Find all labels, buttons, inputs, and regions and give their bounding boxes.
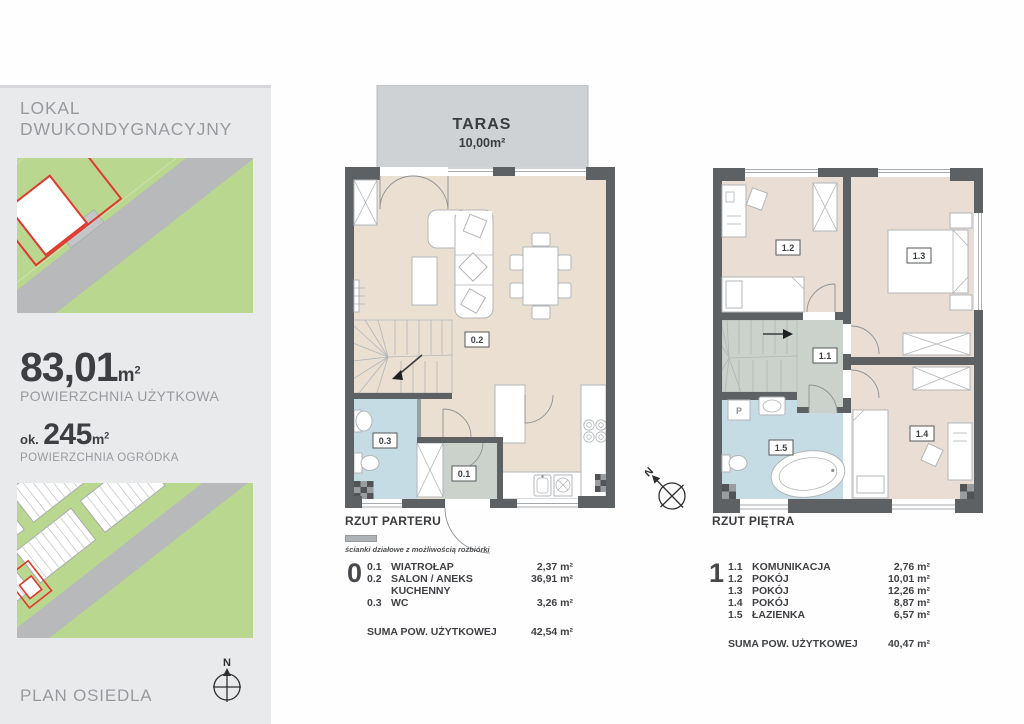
room-label-0-3: 0.3: [373, 433, 397, 448]
duct-checker: [595, 474, 606, 492]
terrace-area: 10,00m²: [459, 136, 506, 150]
compass-icon: N: [205, 653, 249, 711]
terrace: TARAS 10,00m²: [377, 85, 588, 170]
washing-machine-icon: P: [728, 400, 750, 420]
room-row: 1.2 POKÓJ 10,01 m²: [728, 573, 930, 585]
room-label-1-3: 1.3: [907, 248, 931, 263]
room-label-1-1: 1.1: [813, 348, 837, 363]
room-label-0-1: 0.1: [452, 466, 476, 481]
usable-area: 83,01m2: [20, 344, 141, 391]
upper-floor-plan: P: [713, 168, 983, 513]
garden-area: ok. 245m2: [20, 418, 109, 452]
svg-text:0.2: 0.2: [471, 335, 484, 345]
bathroom-sink-icon: [759, 397, 785, 415]
svg-text:1.5: 1.5: [775, 443, 788, 453]
bed: [853, 410, 888, 498]
room-row: 0.3 WC 3,26 m²: [367, 597, 573, 609]
room-label-1-2: 1.2: [776, 240, 800, 255]
svg-text:N: N: [223, 657, 231, 669]
hall-floor: [797, 320, 843, 413]
room-row: 1.5 ŁAZIENKA 6,57 m²: [728, 609, 930, 621]
ground-floor-caption: RZUT PARTERU: [345, 514, 441, 528]
room-row: 1.1 KOMUNIKACJA 2,76 m²: [728, 561, 930, 573]
estate-plan-label: PLAN OSIEDLA: [20, 686, 152, 706]
legend-swatch: [345, 535, 377, 542]
bathroom-sink-icon: [354, 410, 372, 432]
desk: [948, 423, 972, 480]
upper-floor-room-table: 1.1 KOMUNIKACJA 2,76 m² 1.2 POKÓJ 10,01 …: [728, 561, 930, 650]
dishwasher-icon: [554, 475, 572, 496]
svg-text:1.3: 1.3: [913, 251, 926, 261]
svg-text:1.1: 1.1: [819, 351, 832, 361]
garden-area-label: POWIERZCHNIA OGRÓDKA: [20, 452, 179, 464]
nightstand: [950, 213, 972, 228]
fridge: [495, 385, 525, 443]
chair: [558, 283, 571, 298]
room-label-0-2: 0.2: [465, 332, 489, 347]
room-row: 1.3 POKÓJ 12,26 m²: [728, 585, 930, 597]
duct-checker: [722, 484, 736, 499]
room-label-1-4: 1.4: [910, 426, 934, 441]
usable-area-label: POWIERZCHNIA UŻYTKOWA: [20, 388, 219, 404]
svg-text:0.3: 0.3: [379, 436, 392, 446]
room-row: 0.2 SALON / ANEKS KUCHENNY 36,91 m²: [367, 573, 573, 597]
ground-floor-room-table: 0.1 WIATROŁAP 2,37 m² 0.2 SALON / ANEKS …: [367, 561, 573, 638]
level-number-ground: 0: [347, 560, 362, 587]
terrace-title: TARAS: [453, 116, 512, 133]
room-label-1-5: 1.5: [769, 440, 793, 455]
chair: [510, 255, 523, 270]
chair: [510, 283, 523, 298]
svg-text:0.1: 0.1: [458, 469, 471, 479]
coffee-table: [412, 257, 437, 305]
pillow: [857, 476, 884, 493]
duct-checker: [960, 484, 974, 499]
level-number-upper: 1: [709, 560, 724, 587]
svg-text:P: P: [736, 406, 742, 416]
ground-floor-plan: TARAS 10,00m²: [345, 85, 615, 555]
chair: [532, 233, 550, 246]
wardrobe: [354, 180, 377, 225]
usable-area-value: 83,01: [20, 344, 118, 390]
toilet-icon: [722, 455, 747, 472]
bed: [722, 277, 804, 312]
nightstand: [950, 295, 972, 310]
room-row: 1.4 POKÓJ 8,87 m²: [728, 597, 930, 609]
estate-plan-image: [17, 483, 253, 638]
pillow: [726, 281, 742, 308]
kitchen-sink-icon: [534, 475, 551, 496]
compass-icon: N: [645, 450, 705, 540]
dining-table: [523, 247, 558, 305]
svg-text:1.2: 1.2: [782, 243, 795, 253]
upper-floor-caption: RZUT PIĘTRA: [712, 514, 795, 528]
sum-row: SUMA POW. UŻYTKOWEJ 40,47 m²: [728, 638, 930, 650]
sheet-title: LOKAL DWUKONDYGNACYJNY: [20, 98, 260, 140]
site-plan-detail-image: [17, 158, 253, 313]
room-row: 0.1 WIATROŁAP 2,37 m²: [367, 561, 573, 573]
sum-row: SUMA POW. UŻYTKOWEJ 42,54 m²: [367, 626, 573, 638]
floorplan-sheet: LOKAL DWUKONDYGNACYJNY 83,01m2: [0, 0, 1024, 724]
chair: [532, 306, 550, 319]
garden-area-value: 245: [43, 418, 92, 451]
legend-text: ścianki działowe z możliwością rozbiórki: [345, 545, 490, 554]
svg-text:1.4: 1.4: [916, 429, 929, 439]
chair: [558, 255, 571, 270]
